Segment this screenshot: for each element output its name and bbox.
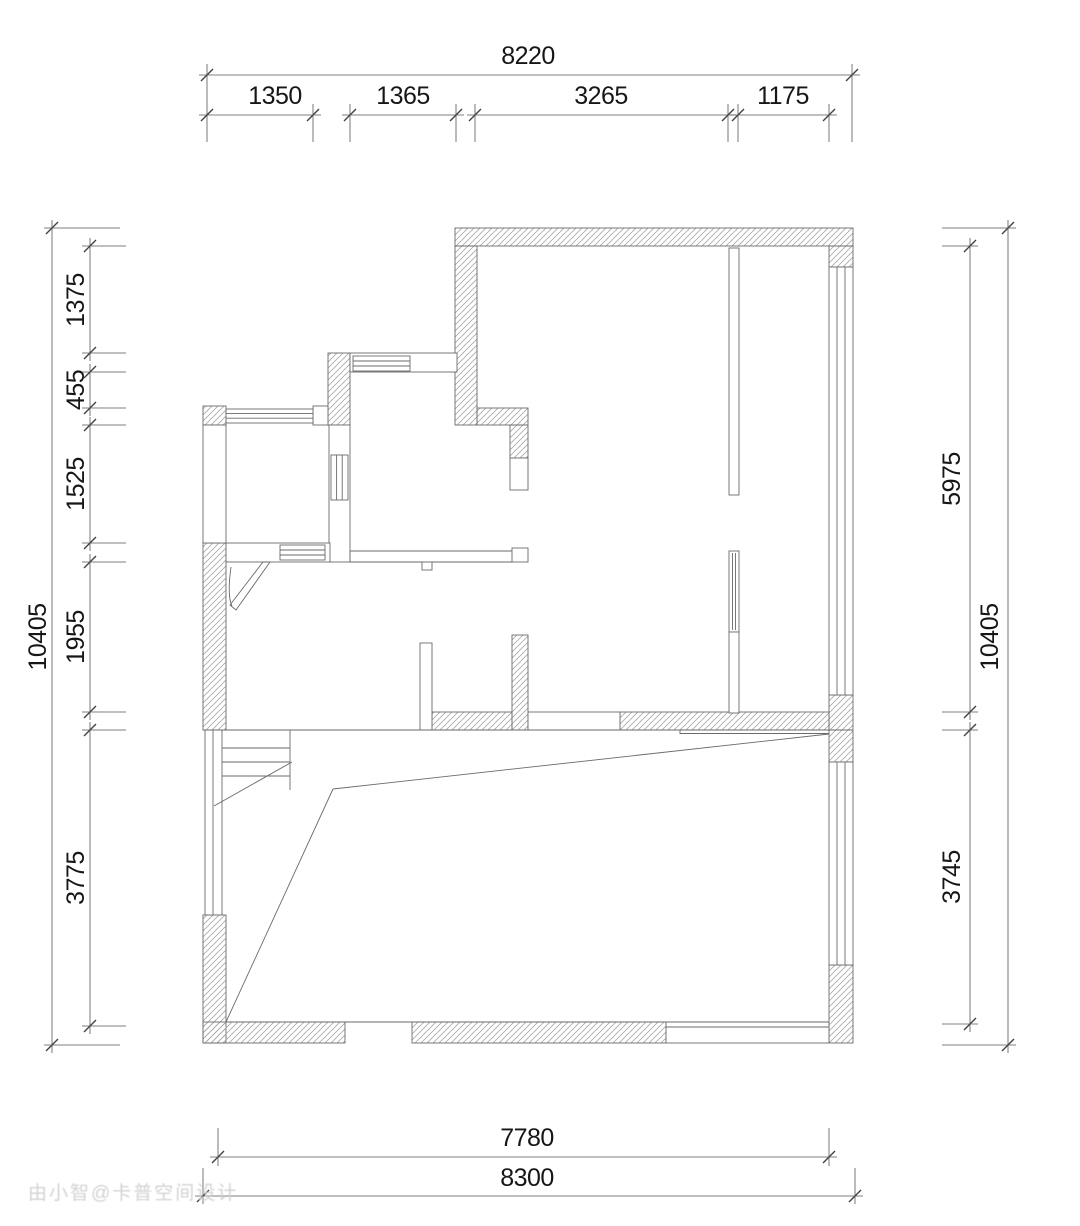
wall-bottom-lintel (666, 1022, 829, 1043)
stair-break-line (214, 762, 292, 806)
stairs (214, 730, 292, 806)
dim-right-overall: 10405 (976, 603, 1004, 670)
wall-column-top (510, 425, 528, 458)
floor-plan-drawing: 8220 1350 1365 3265 1175 10405 1375 455 (0, 0, 1080, 1226)
void-diagonal-2 (226, 789, 333, 1022)
dim-left-seg3: 1525 (62, 457, 90, 511)
wall-corner-top-right (829, 246, 853, 267)
wall-bottom-seg2 (412, 1022, 666, 1043)
door-arc (229, 567, 232, 606)
wall-left-upper-plain (203, 425, 226, 543)
wall-corner-bottom-right (829, 965, 853, 1043)
window-upper-band (353, 356, 410, 371)
dim-left-seg4: 1955 (62, 610, 90, 664)
dim-top-overall: 8220 (501, 42, 555, 70)
kitchen-counter (350, 548, 528, 570)
counter-tab (422, 562, 432, 570)
wall-upper-left-vertical (455, 246, 477, 425)
top-dimensions: 8220 1350 1365 3265 1175 (199, 42, 860, 142)
plan-walls-hatched (203, 228, 853, 1043)
partition-long-lower (729, 632, 739, 713)
window-partition (331, 455, 348, 500)
counter-end-block (512, 548, 528, 562)
wall-arm (477, 408, 528, 425)
plan-windows (226, 267, 853, 965)
dim-bottom-outer: 8300 (500, 1164, 554, 1192)
wall-top (455, 228, 853, 246)
dim-top-seg4: 1175 (757, 82, 809, 110)
ceiling-step-line (680, 730, 829, 734)
window-room-bottom (280, 545, 325, 560)
dim-top-seg2: 1365 (376, 82, 430, 110)
dim-left-overall: 10405 (24, 603, 52, 670)
wall-top-band-white (313, 406, 328, 425)
dim-top-seg1: 1350 (248, 82, 302, 110)
dim-bottom-inner: 7780 (500, 1124, 554, 1152)
wall-right-middle-block (829, 695, 853, 762)
plan-lines (203, 548, 853, 1022)
opening-cased (528, 712, 620, 730)
wall-mid-band-seg1 (432, 712, 512, 730)
dim-top-seg3: 3265 (574, 82, 628, 110)
door-swing (229, 562, 270, 610)
partition-glass (729, 551, 739, 632)
column-white (510, 458, 528, 490)
window-right-lower (829, 762, 853, 965)
dim-right-seg2: 3745 (938, 850, 966, 904)
partition-long-upper (729, 248, 739, 495)
watermark: 由小智@卡普空间设计 (28, 1178, 238, 1205)
window-room-top (226, 409, 313, 423)
wall-kitchen-vertical (512, 635, 528, 730)
bottom-dimensions: 7780 8300 (195, 1124, 863, 1204)
void-diagonal-1 (333, 734, 829, 789)
wall-room-corner (203, 406, 226, 425)
wall-mid-band-seg2 (620, 712, 829, 730)
wall-left-middle (203, 543, 226, 730)
wall-bottom-seg1 (203, 1022, 345, 1043)
wall-small-vertical (328, 353, 350, 425)
dim-left-seg5: 3775 (62, 851, 90, 905)
dim-left-seg1: 1375 (62, 273, 90, 327)
floor-plan-screenshot: 8220 1350 1365 3265 1175 10405 1375 455 (0, 0, 1080, 1226)
left-dimensions: 10405 1375 455 1525 1955 3775 (24, 220, 126, 1053)
dim-right-seg1: 5975 (938, 452, 966, 506)
window-right-upper (829, 267, 853, 695)
door-leaf (230, 562, 270, 610)
partition-bath (420, 643, 432, 730)
wall-left-window-strip (205, 730, 222, 915)
right-dimensions: 5975 3745 10405 (938, 220, 1016, 1053)
